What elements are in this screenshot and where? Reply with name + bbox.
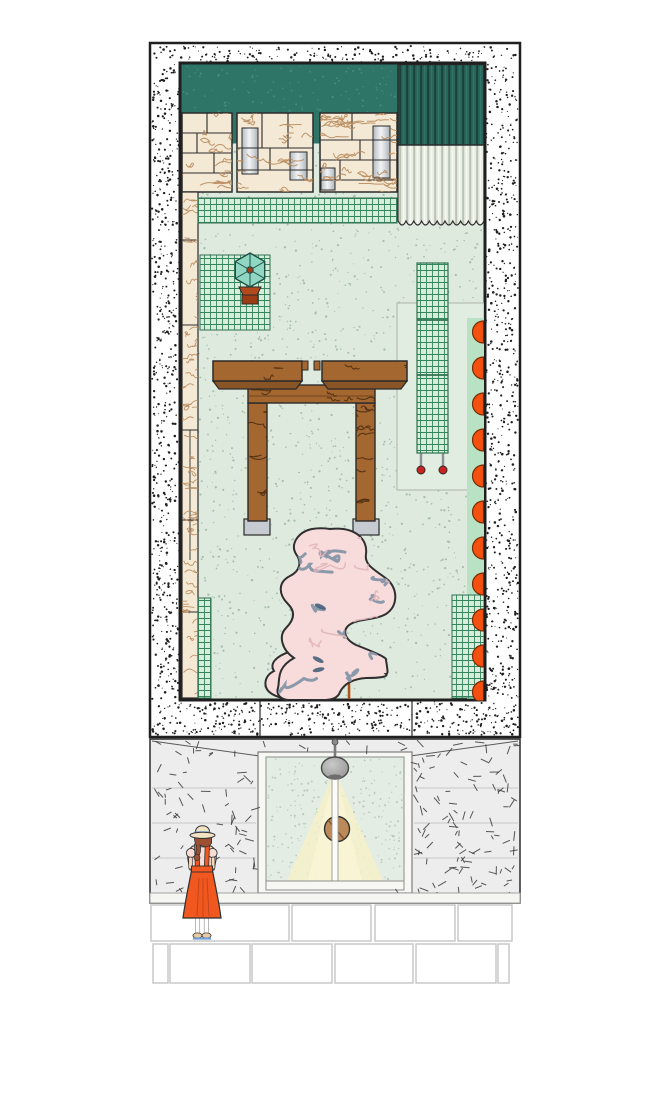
caster-wheel [417,466,425,474]
illustration-canvas [0,0,665,1100]
hat-brim [190,832,215,838]
door-bottom-rail [266,881,404,890]
grid-strip-bottom-left [198,598,211,698]
wood-block-wall [168,110,423,197]
caster-wheel [439,466,447,474]
floor-plan-view [150,43,520,737]
grid-strip-horizontal [198,198,397,223]
pavement-tile [292,905,371,941]
pinafore-waistband [192,866,213,872]
lamp-base [328,774,342,779]
person-shoe [193,933,202,938]
person-leg [204,916,208,934]
pavement-tile [375,905,455,941]
pavement-tile [498,944,509,983]
table-slab [213,361,302,381]
table-leg [248,403,267,521]
pavement-tile [252,944,332,983]
pavement-tile [335,944,413,983]
pinafore-strap [204,844,209,868]
pavement-tile [416,944,496,983]
hair-bun [194,855,200,861]
mesh-screen-on-casters [417,263,448,474]
pavement-tile [458,905,512,941]
pavement-tile [153,944,168,983]
person-leg [196,916,200,934]
person-shoe [202,933,211,938]
dark-pleated-screen [398,65,484,146]
pavement-tile [170,944,250,983]
pale-pleated-screen [398,143,484,225]
illustration-root [0,0,665,1100]
table-slab [322,361,407,381]
